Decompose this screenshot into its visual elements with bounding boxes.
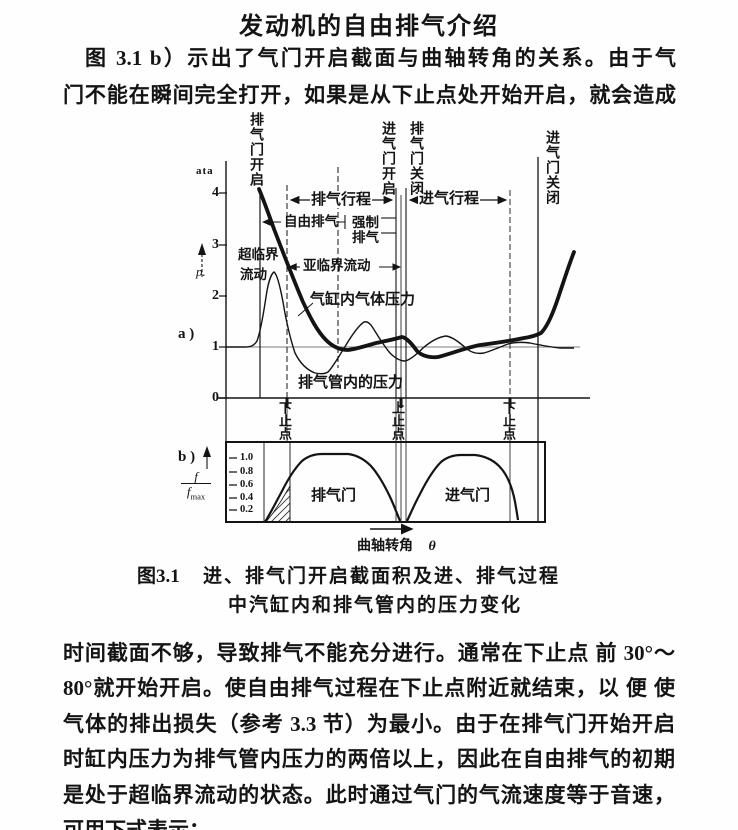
supercritical-line1: 超临界 [238, 247, 279, 262]
label-exhaust-valve-opens: 排气门开启 [247, 112, 264, 187]
supercritical-line2: 流动 [238, 267, 279, 282]
panel-b-label: b ) [178, 449, 195, 466]
a-tick-1: 1 [197, 340, 219, 354]
scanned-document-page: 发动机的自由排气介绍 图 3.1 b）示出了气门开启截面与曲轴转角的关系。由于气… [0, 0, 738, 830]
body-line: 80°就开始开启。使自由排气过程在下止点附近就结束，以 便 使 [63, 671, 675, 706]
f-over-fmax-label: f fmax [181, 470, 211, 504]
body-paragraph: 时间截面不够，导致排气不能充分进行。通常在下止点 前 30°～ 80°就开始开启… [63, 636, 675, 830]
free-exhaust-label: 自由排气 [283, 214, 339, 229]
forced-exhaust-label: 强制 排气 [351, 215, 380, 245]
body-line: 时间截面不够，导致排气不能充分进行。通常在下止点 前 30°～ [63, 636, 675, 671]
figure-caption-number: 图3.1 [137, 561, 180, 588]
bdc-label-1: 下止点 [277, 401, 292, 440]
supercritical-flow-label: 超临界 流动 [237, 247, 280, 282]
label-intake-valve-closes: 进气门关闭 [543, 130, 560, 205]
b-tick-1.0: 1.0 [240, 453, 264, 463]
body-line: 是处于超临界流动的状态。此时通过气门的气流速度等于音速， [63, 778, 675, 813]
a-tick-4: 4 [197, 186, 219, 200]
forced-exhaust-line1: 强制 [352, 215, 379, 230]
fraction-numerator: f [181, 470, 211, 483]
exhaust-valve-name: 排气门 [311, 484, 356, 505]
intake-valve-name: 进气门 [445, 484, 490, 505]
b-tick-0.4: 0.4 [240, 493, 264, 503]
exhaust-pipe-pressure-curve [226, 272, 574, 374]
panel-a-label: a ) [178, 326, 194, 343]
figure-caption-line2: 中汽缸内和排气管内的压力变化 [228, 590, 522, 617]
intake-stroke-label: 进气行程 [418, 192, 480, 207]
b-tick-0.6: 0.6 [240, 480, 264, 490]
figure-3-1: 排气门开启 进气门开启 排气门关闭 进气门关闭 ata p. a ) b ) 4… [150, 105, 630, 560]
theta-symbol: θ [429, 539, 436, 554]
free-exhaust-hatched-area [266, 486, 290, 522]
b-tick-0.2: 0.2 [240, 505, 264, 515]
b-tick-0.8: 0.8 [240, 467, 264, 477]
x-axis-text: 曲轴转角 [357, 539, 413, 554]
body-line: 可用下式表示： [63, 813, 675, 830]
page-title: 发动机的自由排气介绍 [0, 6, 738, 41]
pipe-pressure-label: 排气管内的压力 [297, 376, 404, 391]
a-tick-0: 0 [197, 391, 219, 405]
intro-paragraph: 图 3.1 b）示出了气门开启截面与曲轴转角的关系。由于气 门不能在瞬间完全打开… [63, 40, 676, 113]
forced-exhaust-line2: 排气 [352, 230, 379, 245]
intro-line: 图 3.1 b）示出了气门开启截面与曲轴转角的关系。由于气 [63, 40, 676, 77]
exhaust-stroke-label: 排气行程 [310, 193, 372, 208]
label-intake-valve-opens: 进气门开启 [379, 121, 396, 196]
y-axis-symbol-p: p. [196, 266, 206, 278]
y-axis-unit-ata: ata [196, 165, 214, 177]
cylinder-pressure-label: 气缸内气体压力 [309, 293, 416, 308]
x-axis-label: 曲轴转角 θ [357, 535, 436, 555]
tdc-label: 上止点 [390, 401, 405, 440]
a-tick-3: 3 [197, 238, 219, 252]
panel-b-frame [226, 442, 545, 522]
subcritical-flow-label: 亚临界流动 [302, 258, 372, 273]
body-line: 时缸内压力为排气管内压力的两倍以上，因此在自由排气的初期 [63, 742, 675, 777]
figure-caption-line1: 进、排气门开启截面积及进、排气过程 [203, 561, 560, 588]
fraction-denominator: fmax [181, 483, 211, 504]
body-line: 气体的排出损失（参考 3.3 节）为最小。由于在排气门开始开启 [63, 707, 675, 742]
label-exhaust-valve-closes: 排气门关闭 [407, 121, 424, 196]
bdc-label-2: 下止点 [501, 401, 516, 440]
a-tick-2: 2 [197, 289, 219, 303]
